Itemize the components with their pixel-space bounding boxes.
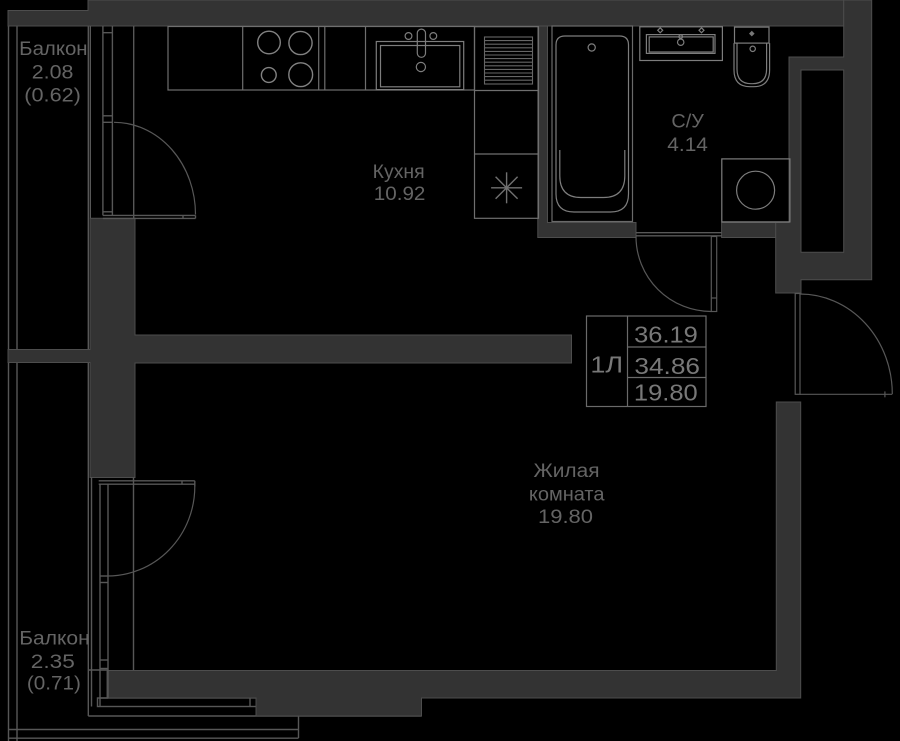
svg-text:(0.62): (0.62) bbox=[24, 85, 81, 106]
svg-text:Жилая: Жилая bbox=[534, 461, 600, 482]
svg-text:(0.71): (0.71) bbox=[27, 674, 81, 695]
svg-text:Кухня: Кухня bbox=[373, 162, 425, 183]
svg-text:Балкон: Балкон bbox=[19, 39, 87, 60]
svg-text:1Л: 1Л bbox=[590, 351, 623, 377]
svg-text:19.80: 19.80 bbox=[634, 380, 698, 406]
svg-text:2.08: 2.08 bbox=[32, 62, 74, 83]
svg-text:34.86: 34.86 bbox=[634, 353, 700, 379]
svg-text:10.92: 10.92 bbox=[374, 184, 426, 205]
svg-text:2.35: 2.35 bbox=[31, 652, 75, 673]
svg-text:4.14: 4.14 bbox=[667, 135, 708, 156]
svg-text:С/У: С/У bbox=[671, 111, 704, 132]
svg-text:комната: комната bbox=[529, 484, 605, 505]
svg-text:Балкон: Балкон bbox=[19, 628, 90, 649]
svg-text:36.19: 36.19 bbox=[634, 322, 698, 348]
svg-text:19.80: 19.80 bbox=[538, 507, 593, 528]
